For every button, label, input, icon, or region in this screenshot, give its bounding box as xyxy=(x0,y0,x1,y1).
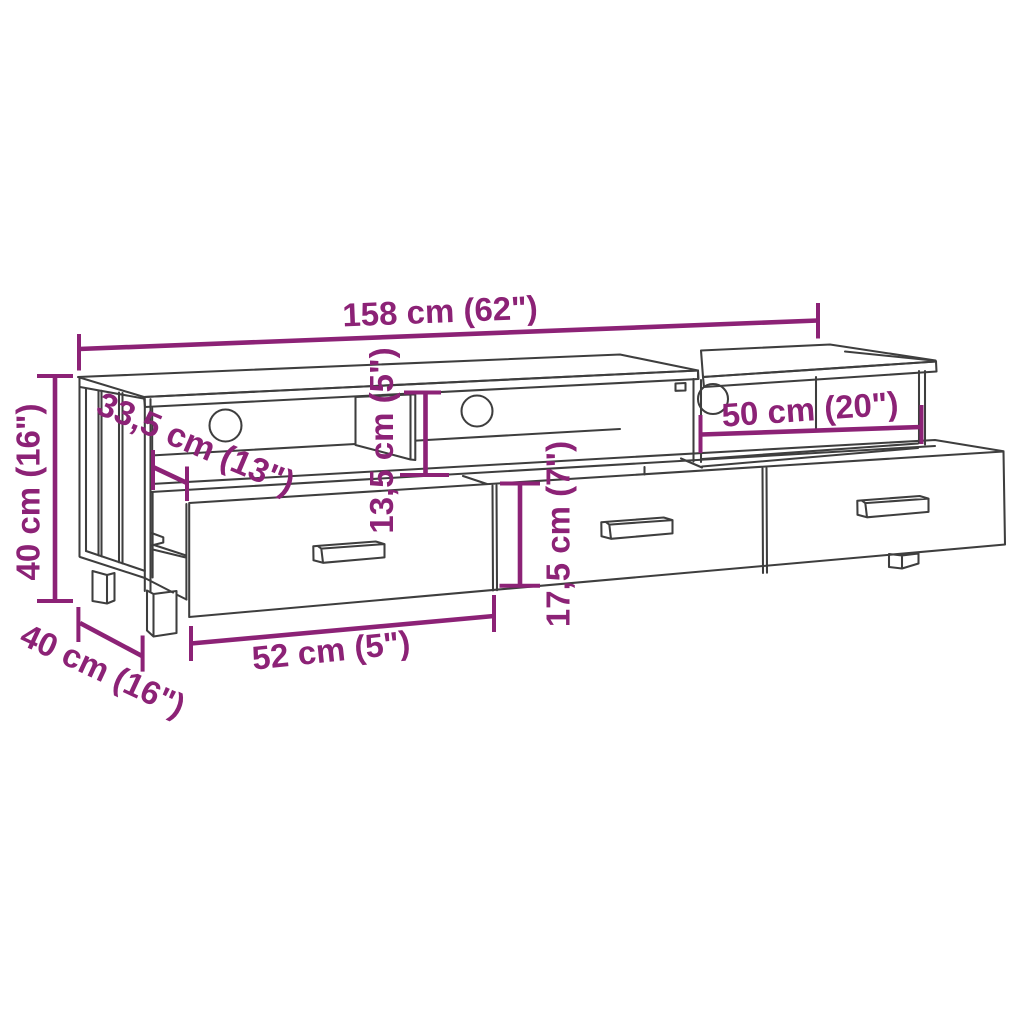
svg-text:40 cm (16"): 40 cm (16") xyxy=(10,403,47,580)
svg-text:50 cm (20"): 50 cm (20") xyxy=(720,384,899,433)
svg-text:13,5 cm (5"): 13,5 cm (5") xyxy=(363,347,400,533)
svg-text:158 cm (62"): 158 cm (62") xyxy=(342,289,539,334)
svg-text:52 cm (5"): 52 cm (5") xyxy=(250,623,412,676)
svg-text:17,5 cm (7"): 17,5 cm (7") xyxy=(540,441,577,627)
svg-text:40 cm (16"): 40 cm (16") xyxy=(15,616,191,724)
